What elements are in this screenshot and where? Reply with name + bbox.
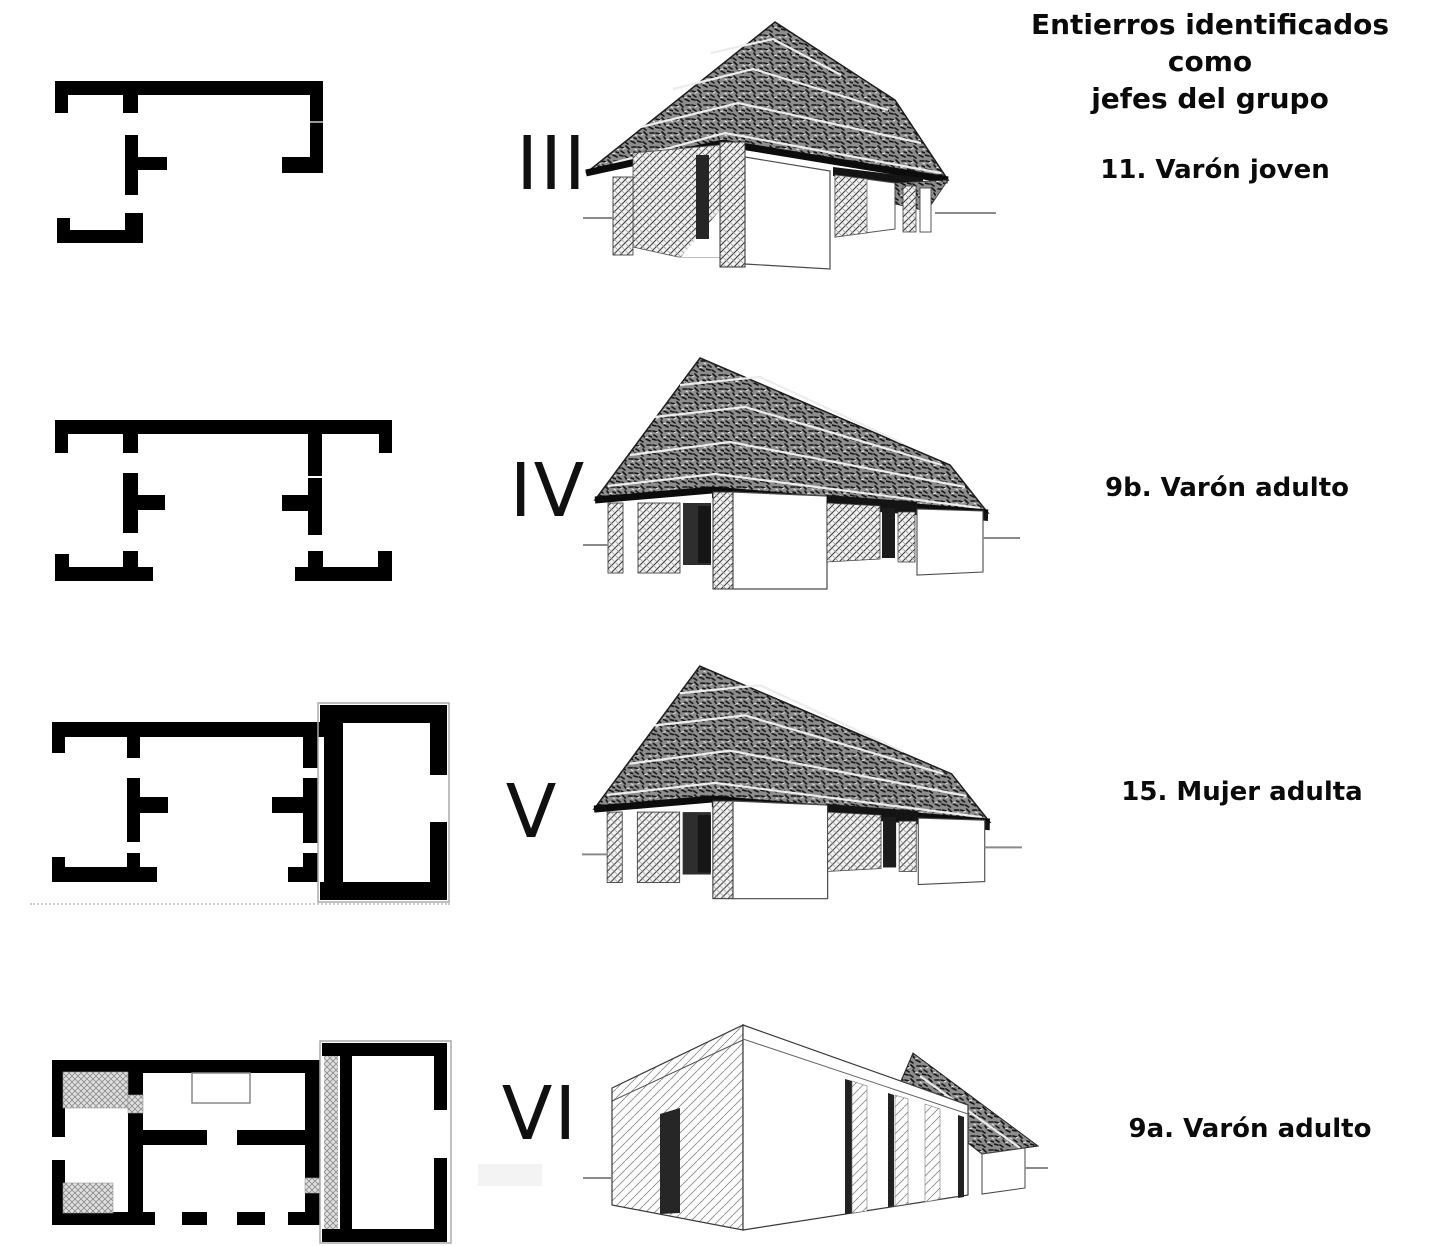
figure-title-line-2: jefes del grupo xyxy=(985,80,1434,117)
burial-label-phase-vi: 9a. Varón adulto xyxy=(1060,1114,1434,1144)
plan-annex-room xyxy=(320,1041,451,1243)
faded-artifact-box xyxy=(478,1164,542,1186)
phase-numeral-iv: IV xyxy=(510,448,586,534)
plan-v-baseline xyxy=(30,903,450,905)
floor-plan-vi xyxy=(48,1040,455,1245)
plan-annex-room xyxy=(318,703,449,902)
phase-numeral-iii: III xyxy=(516,121,587,207)
burial-label-phase-iii: 11. Varón joven xyxy=(1025,155,1405,185)
phase-numeral-v: V xyxy=(506,769,559,855)
figure-title-line-1: Entierros identificados como xyxy=(985,6,1434,80)
house-drawing-v xyxy=(578,653,1033,945)
burial-label-phase-iv: 9b. Varón adulto xyxy=(1037,473,1417,503)
plan-walls xyxy=(52,722,324,882)
house-drawing-vi xyxy=(580,1008,1050,1246)
phase-numeral-vi: VI xyxy=(502,1071,578,1157)
figure-title: Entierros identificados como jefes del g… xyxy=(985,6,1434,117)
plan-walls xyxy=(55,420,392,581)
burial-label-phase-v: 15. Mujer adulta xyxy=(1052,777,1432,807)
floor-plan-iv xyxy=(55,418,392,583)
house-drawing-iv xyxy=(580,345,1030,635)
floor-plan-v xyxy=(48,698,458,910)
plan-walls xyxy=(55,81,323,243)
floor-plan-iii xyxy=(55,78,325,246)
figure-canvas: Entierros identificados como jefes del g… xyxy=(0,0,1434,1246)
house-drawing-iii xyxy=(583,5,998,290)
